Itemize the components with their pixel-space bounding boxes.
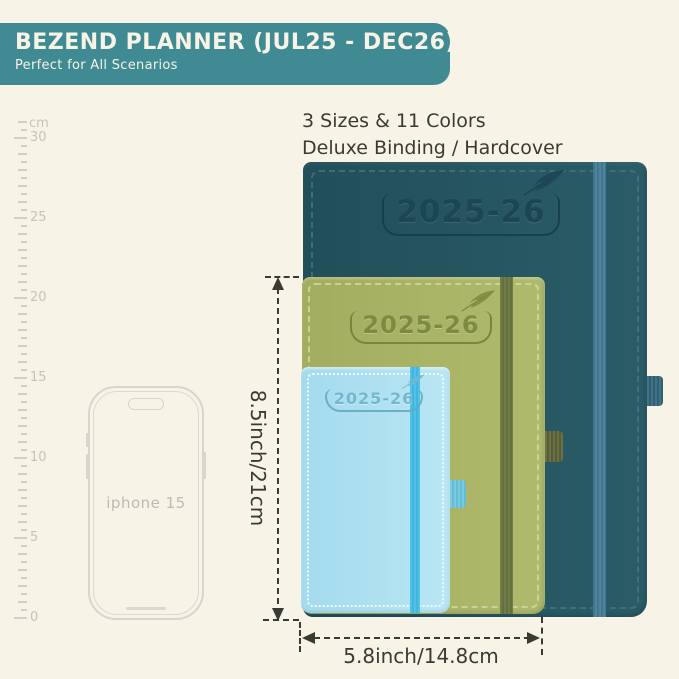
ruler-tick bbox=[21, 337, 27, 339]
year-label: 2025-26 bbox=[362, 311, 479, 339]
ruler-unit-label: cm bbox=[29, 116, 49, 131]
ruler-tick bbox=[21, 161, 27, 163]
ruler-tick bbox=[21, 433, 27, 435]
cover-brand: 2025-26 bbox=[302, 311, 540, 344]
ruler-tick bbox=[18, 265, 27, 267]
ruler-tick bbox=[21, 449, 27, 451]
iphone-label: iphone 15 bbox=[90, 494, 202, 512]
ruler-tick bbox=[18, 569, 27, 571]
height-dimension-label: 8.5inch/21cm bbox=[244, 358, 270, 558]
ruler-tick bbox=[18, 601, 27, 603]
ruler-tick bbox=[21, 177, 27, 179]
pen-loop bbox=[450, 480, 466, 508]
planner-small: 2025-26 bbox=[301, 367, 450, 613]
volume-button-icon bbox=[86, 454, 89, 479]
ruler-number-label: 15 bbox=[30, 370, 47, 385]
ruler-tick bbox=[21, 385, 27, 387]
ruler-tick bbox=[21, 145, 27, 147]
ruler-tick bbox=[21, 193, 27, 195]
cover-brand: 2025-26 bbox=[301, 389, 447, 412]
ruler-tick bbox=[14, 137, 27, 139]
ruler-tick bbox=[18, 505, 27, 507]
feature-line-binding: Deluxe Binding / Hardcover bbox=[302, 135, 563, 162]
year-label: 2025-26 bbox=[334, 389, 414, 408]
ruler-tick bbox=[21, 257, 27, 259]
dimension-extension-line bbox=[263, 619, 299, 621]
ruler-tick bbox=[21, 321, 27, 323]
ruler-number-label: 10 bbox=[30, 450, 47, 465]
ruler-tick bbox=[18, 425, 27, 427]
iphone-outline: iphone 15 bbox=[88, 386, 204, 620]
ruler-tick bbox=[21, 593, 27, 595]
ruler-tick bbox=[21, 369, 27, 371]
ruler-tick bbox=[18, 361, 27, 363]
quill-icon bbox=[460, 289, 496, 312]
ruler-tick bbox=[18, 185, 27, 187]
ruler-tick bbox=[21, 609, 27, 611]
year-frame: 2025-26 bbox=[325, 389, 423, 412]
ruler-tick bbox=[18, 121, 27, 123]
quill-icon bbox=[401, 374, 425, 389]
ruler-tick bbox=[21, 465, 27, 467]
ruler-tick bbox=[21, 529, 27, 531]
arrow-left-icon bbox=[302, 632, 315, 644]
ruler-number-label: 30 bbox=[30, 130, 47, 145]
ruler-tick bbox=[14, 217, 27, 219]
ruler-tick bbox=[18, 345, 27, 347]
ruler-tick bbox=[21, 577, 27, 579]
ruler-tick bbox=[18, 169, 27, 171]
cover-brand: 2025-26 bbox=[303, 194, 639, 236]
product-title: BEZEND PLANNER (JUL25 - DEC26) bbox=[15, 30, 450, 55]
ruler-tick bbox=[18, 489, 27, 491]
year-label: 2025-26 bbox=[396, 194, 545, 230]
quill-icon bbox=[522, 168, 566, 196]
ruler-tick bbox=[18, 201, 27, 203]
ruler-tick bbox=[18, 281, 27, 283]
ruler-tick bbox=[21, 497, 27, 499]
ruler-tick bbox=[21, 273, 27, 275]
ruler-tick bbox=[21, 545, 27, 547]
width-dimension-label: 5.8inch/14.8cm bbox=[321, 644, 521, 668]
ruler-tick bbox=[14, 617, 27, 619]
dynamic-island-icon bbox=[128, 398, 164, 410]
arrow-up-icon bbox=[272, 277, 284, 290]
ruler-tick bbox=[14, 377, 27, 379]
ruler-tick bbox=[21, 481, 27, 483]
ruler-tick bbox=[21, 417, 27, 419]
dimension-extension-line bbox=[299, 622, 301, 652]
arrow-right-icon bbox=[527, 632, 540, 644]
pen-loop bbox=[647, 376, 663, 406]
ruler-tick bbox=[21, 513, 27, 515]
ruler-tick bbox=[18, 233, 27, 235]
dimension-line bbox=[314, 637, 530, 639]
iphone-home-bar-icon bbox=[126, 607, 166, 610]
ruler-number-label: 20 bbox=[30, 290, 47, 305]
power-button-icon bbox=[203, 452, 206, 479]
feature-line-sizes: 3 Sizes & 11 Colors bbox=[302, 108, 563, 135]
product-subtitle: Perfect for All Scenarios bbox=[15, 58, 450, 73]
ruler-tick bbox=[18, 249, 27, 251]
ruler-number-label: 5 bbox=[30, 530, 38, 545]
ruler-number-label: 0 bbox=[30, 610, 38, 625]
ruler-tick bbox=[21, 289, 27, 291]
ruler-tick bbox=[21, 241, 27, 243]
ruler-number-label: 25 bbox=[30, 210, 47, 225]
year-frame: 2025-26 bbox=[350, 311, 491, 344]
ruler-tick bbox=[18, 329, 27, 331]
ruler-tick bbox=[18, 553, 27, 555]
year-frame: 2025-26 bbox=[382, 194, 559, 236]
ruler-tick bbox=[18, 153, 27, 155]
dimension-extension-line bbox=[541, 617, 543, 655]
ruler-tick bbox=[21, 305, 27, 307]
ruler-tick bbox=[18, 409, 27, 411]
dimension-line bbox=[277, 288, 279, 614]
volume-button-icon bbox=[86, 433, 89, 447]
ruler-tick bbox=[21, 129, 27, 131]
ruler-tick bbox=[18, 521, 27, 523]
ruler-tick bbox=[18, 313, 27, 315]
ruler-tick bbox=[18, 441, 27, 443]
ruler-tick bbox=[21, 401, 27, 403]
feature-note: 3 Sizes & 11 Colors Deluxe Binding / Har… bbox=[302, 108, 563, 162]
ruler-tick bbox=[14, 297, 27, 299]
ruler-tick bbox=[21, 353, 27, 355]
title-banner: BEZEND PLANNER (JUL25 - DEC26) Perfect f… bbox=[0, 23, 450, 85]
ruler-tick bbox=[21, 225, 27, 227]
ruler-tick bbox=[14, 537, 27, 539]
product-image: BEZEND PLANNER (JUL25 - DEC26) Perfect f… bbox=[0, 0, 679, 679]
ruler-tick bbox=[18, 473, 27, 475]
ruler-tick bbox=[14, 457, 27, 459]
pen-loop bbox=[545, 431, 563, 462]
ruler-tick bbox=[21, 209, 27, 211]
ruler-tick bbox=[18, 393, 27, 395]
ruler-tick bbox=[21, 561, 27, 563]
ruler-tick bbox=[18, 585, 27, 587]
